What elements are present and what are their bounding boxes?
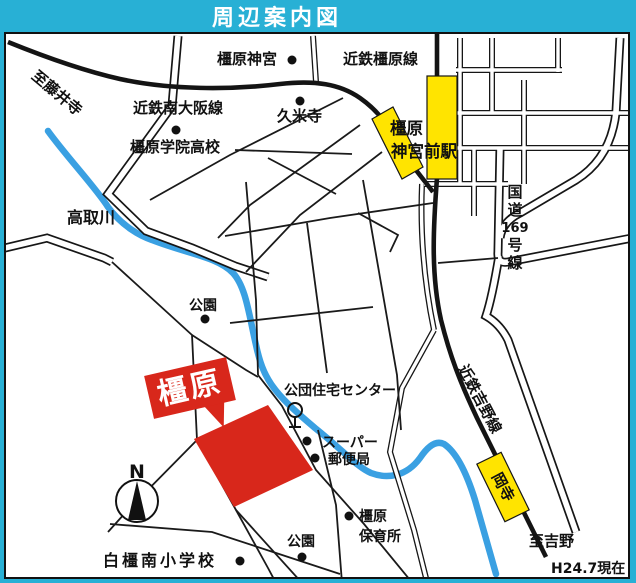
hoikusho-dot <box>345 512 354 521</box>
compass-north-label: N <box>129 461 145 483</box>
label-kodan-center: 公団住宅センター <box>284 382 396 399</box>
label-takatori-river: 高取川 <box>67 208 115 227</box>
park-lower-dot <box>298 553 307 562</box>
park-upper-dot <box>201 315 210 324</box>
label-kumedera: 久米寺 <box>277 107 322 125</box>
label-park-upper: 公園 <box>189 298 217 314</box>
label-post-office: 郵便局 <box>328 451 370 468</box>
label-gakuin-hs: 橿原学院高校 <box>130 138 221 156</box>
label-jingumae-station-2: 神宮前駅 <box>391 141 458 161</box>
label-kashihara-shrine: 橿原神宮 <box>217 50 277 68</box>
supermarket-dot <box>303 437 312 446</box>
area-guide-map: 周辺案内図 <box>0 0 636 583</box>
label-minami-osaka-line: 近鉄南大阪線 <box>133 99 223 117</box>
label-supermarket: スーパー <box>322 435 378 451</box>
kashihara-shrine-dot <box>288 56 297 65</box>
gakuin-hs-dot <box>172 126 181 135</box>
label-hoikusho-1: 橿原 <box>359 508 387 525</box>
svg-text:道: 道 <box>507 201 522 219</box>
post-office-dot <box>311 454 320 463</box>
shirakashi-es-dot <box>236 557 245 566</box>
page-title: 周辺案内図 <box>212 5 342 31</box>
label-hoikusho-2: 保育所 <box>358 528 401 545</box>
label-jingumae-station-1: 橿原 <box>390 118 423 138</box>
svg-text:国: 国 <box>507 183 522 201</box>
svg-text:線: 線 <box>507 254 522 272</box>
label-to-yoshino: 至吉野 <box>529 532 574 550</box>
svg-text:号: 号 <box>507 236 522 254</box>
kumedera-dot <box>296 97 305 106</box>
label-park-lower: 公園 <box>287 534 315 550</box>
jingumae-station-building <box>427 76 457 179</box>
label-kashihara-line: 近鉄橿原線 <box>343 50 418 68</box>
label-shirakashi-es: 白橿南小学校 <box>103 551 217 570</box>
svg-text:169: 169 <box>501 221 528 236</box>
label-date-note: H24.7現在 <box>551 560 625 577</box>
map-page: 周辺案内図 <box>0 0 636 583</box>
